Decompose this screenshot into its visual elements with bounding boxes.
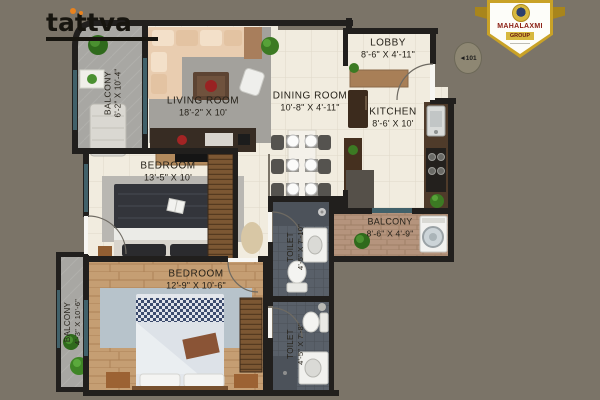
washing-machine xyxy=(420,216,447,252)
toilet1-door-leaf xyxy=(268,212,272,242)
balcony-left-window xyxy=(57,290,60,348)
toilet2-door-leaf xyxy=(268,308,272,338)
bedroom2-wardrobe xyxy=(240,298,262,372)
stove xyxy=(426,148,446,192)
badge-divider xyxy=(510,43,530,44)
bedroom2-door-leaf xyxy=(228,258,258,262)
kitchen-plant xyxy=(430,194,444,208)
badge-title: MAHALAXMI xyxy=(487,23,553,30)
floor-plan-page: BALCONY 6'-2" X 10'-4" LIVING ROOM 18'-2… xyxy=(0,0,600,400)
dining-set xyxy=(271,130,331,200)
bedroom1-window xyxy=(84,164,88,212)
kitchen-sink xyxy=(427,106,445,136)
tattva-logo: tattva xyxy=(46,10,158,41)
badge-subtitle: GROUP xyxy=(506,32,534,40)
coffee-table xyxy=(193,72,229,100)
balcony-top-window xyxy=(73,70,77,130)
bedroom1-wardrobe xyxy=(208,154,233,260)
logo-text: tattva xyxy=(46,10,158,35)
fridge xyxy=(348,90,368,128)
mahalaxmi-group-badge: MAHALAXMI GROUP xyxy=(487,0,553,60)
badge-emblem-icon xyxy=(512,4,530,22)
logo-accent-dot-icon xyxy=(70,8,76,14)
entrance-door-leaf xyxy=(430,64,435,100)
logo-underline xyxy=(46,37,158,41)
living-balcony-window xyxy=(143,58,147,134)
living-plant xyxy=(261,37,279,55)
balcony-right-plant xyxy=(354,233,370,249)
floor-plan-graphic xyxy=(0,0,600,400)
balcony-right-slider xyxy=(372,208,412,213)
bedroom2-window xyxy=(84,300,88,356)
logo-accent-dot-icon xyxy=(79,11,83,15)
bedroom1-door-leaf xyxy=(84,216,88,254)
kitchen-utility xyxy=(346,170,374,212)
hallway-rug xyxy=(241,222,263,254)
unit-number-plate: ◄101 xyxy=(454,42,482,74)
